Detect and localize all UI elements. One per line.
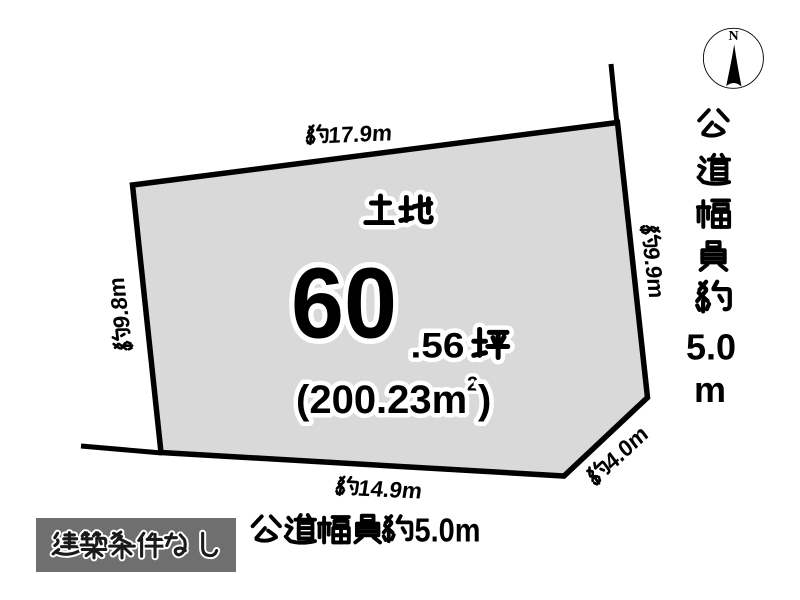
svg-text:): ) [478,378,491,422]
svg-text:17.9m: 17.9m [328,120,393,148]
svg-text:N: N [728,29,738,44]
svg-text:5.0: 5.0 [686,327,736,368]
svg-text:60: 60 [291,248,397,360]
svg-text:5.0m: 5.0m [415,512,481,549]
svg-text:m: m [694,369,726,410]
svg-text:2: 2 [467,374,478,396]
svg-text:14.9m: 14.9m [356,476,424,504]
svg-text:(200.23m: (200.23m [296,378,467,422]
svg-text:.56: .56 [411,327,465,366]
